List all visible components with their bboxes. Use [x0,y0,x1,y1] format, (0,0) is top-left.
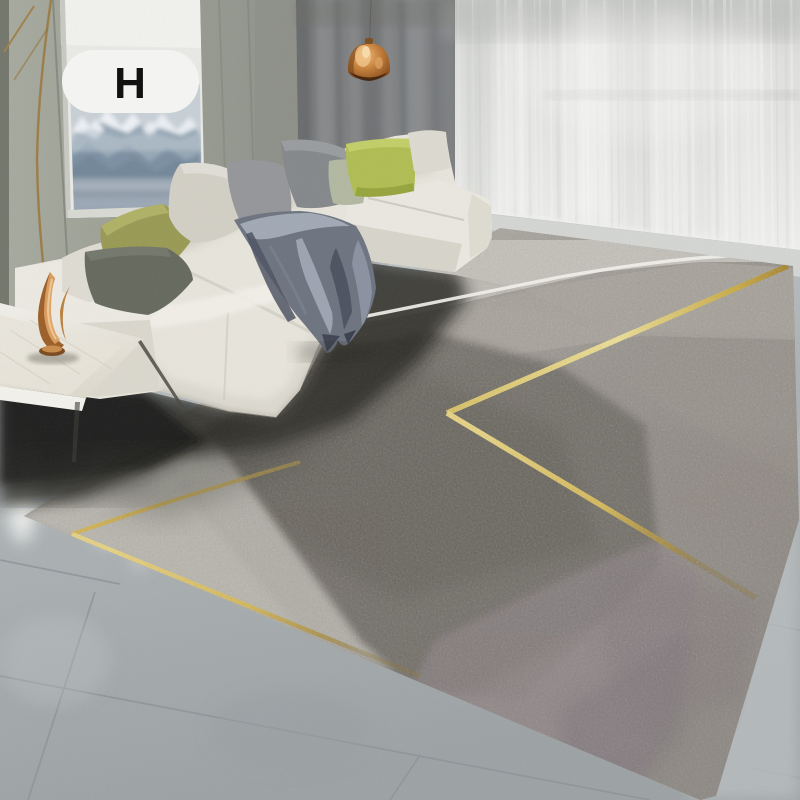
svg-text:H: H [114,59,146,108]
